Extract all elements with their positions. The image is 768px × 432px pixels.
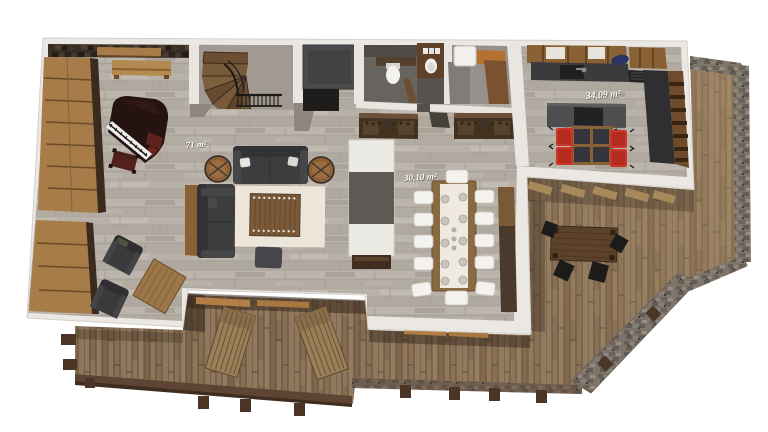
svg-text:30,10 m²: 30,10 m² bbox=[403, 171, 438, 183]
svg-text:71 m²: 71 m² bbox=[186, 139, 207, 150]
